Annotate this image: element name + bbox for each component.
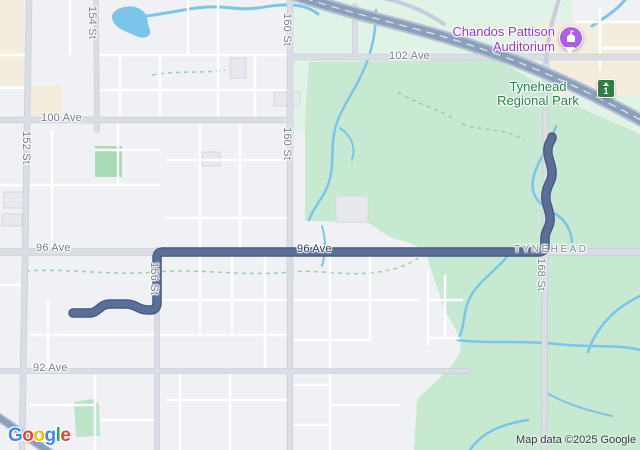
auditorium-pin-icon bbox=[560, 27, 582, 49]
maple-leaf-icon bbox=[603, 82, 609, 86]
commercial-block bbox=[0, 0, 24, 85]
street-label-160-st-mid: 160 St bbox=[281, 127, 293, 160]
logo-letter: g bbox=[45, 425, 56, 446]
logo-letter: o bbox=[33, 425, 44, 446]
tynehead-park-label-line1: Tynehead bbox=[478, 80, 598, 94]
street-label-92-ave: 92 Ave bbox=[33, 362, 68, 374]
map-base-corner bbox=[572, 0, 640, 24]
map-canvas[interactable]: 154 St 160 St 160 St 152 St 156 St 168 S… bbox=[0, 0, 640, 450]
logo-letter: o bbox=[22, 425, 33, 446]
street-label-96-ave-left: 96 Ave bbox=[36, 242, 71, 254]
street-label-96-ave-on-route: 96 Ave bbox=[297, 243, 332, 255]
chandos-auditorium-label-line2: Auditorium bbox=[425, 39, 555, 54]
street-label-152-st: 152 St bbox=[20, 131, 32, 164]
google-logo[interactable]: Google bbox=[8, 425, 70, 447]
street-label-160-st-top: 160 St bbox=[281, 13, 293, 46]
street-label-102-ave: 102 Ave bbox=[389, 50, 430, 62]
highway-shield-number: 1 bbox=[603, 87, 608, 96]
logo-letter: e bbox=[60, 425, 70, 446]
street-label-100-ave: 100 Ave bbox=[41, 112, 82, 124]
street-label-tynehead: TYNEHEAD bbox=[514, 244, 588, 255]
chandos-auditorium-label-line1: Chandos Pattison bbox=[425, 24, 555, 39]
map-layers bbox=[0, 0, 640, 450]
chandos-auditorium-label[interactable]: Chandos Pattison Auditorium bbox=[425, 24, 555, 54]
tynehead-park-label-line2: Regional Park bbox=[478, 94, 598, 108]
auditorium-pin-tip bbox=[565, 47, 575, 54]
tynehead-park-label[interactable]: Tynehead Regional Park bbox=[478, 80, 598, 108]
logo-letter: G bbox=[8, 425, 22, 446]
street-label-154-st: 154 St bbox=[86, 6, 98, 39]
street-label-168-st: 168 St bbox=[535, 258, 547, 291]
highway-1-shield: 1 bbox=[597, 79, 615, 98]
map-attribution: Map data ©2025 Google bbox=[516, 434, 636, 446]
street-label-156-st: 156 St bbox=[148, 262, 160, 295]
